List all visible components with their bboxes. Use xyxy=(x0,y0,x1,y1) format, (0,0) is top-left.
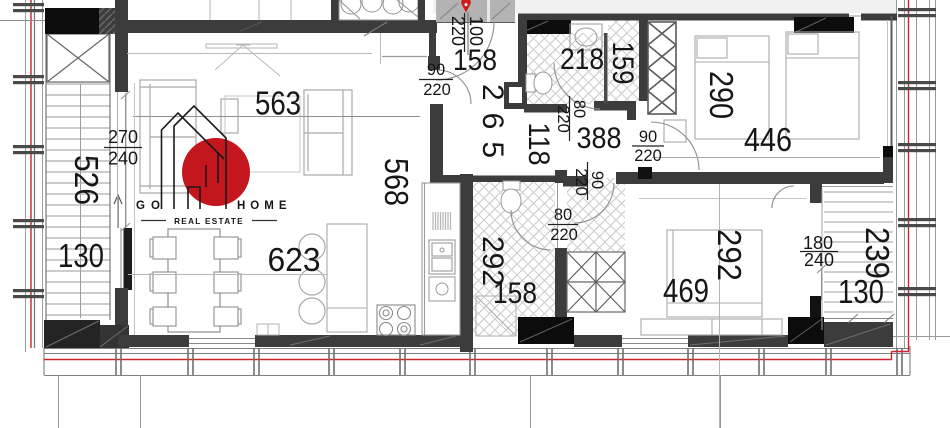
svg-text:GO: GO xyxy=(136,200,166,212)
svg-text:159: 159 xyxy=(606,42,639,85)
svg-text:158: 158 xyxy=(453,44,497,77)
svg-text:130: 130 xyxy=(58,237,104,274)
svg-text:623: 623 xyxy=(268,241,321,278)
svg-text:220: 220 xyxy=(448,16,468,46)
svg-text:80: 80 xyxy=(554,206,572,224)
svg-text:446: 446 xyxy=(744,121,792,158)
svg-text:270: 270 xyxy=(108,127,138,147)
svg-text:265: 265 xyxy=(476,84,509,158)
svg-text:563: 563 xyxy=(255,85,301,122)
svg-text:100: 100 xyxy=(466,16,486,46)
svg-text:240: 240 xyxy=(804,250,834,270)
svg-text:220: 220 xyxy=(423,81,451,99)
svg-text:292: 292 xyxy=(711,229,748,281)
svg-text:90: 90 xyxy=(427,61,445,79)
svg-text:118: 118 xyxy=(522,123,555,166)
svg-text:290: 290 xyxy=(703,71,740,119)
svg-text:218: 218 xyxy=(560,43,604,76)
svg-text:239: 239 xyxy=(859,227,896,279)
svg-text:90: 90 xyxy=(639,128,657,146)
svg-text:130: 130 xyxy=(838,273,884,310)
svg-text:568: 568 xyxy=(378,158,415,206)
svg-text:REAL ESTATE: REAL ESTATE xyxy=(174,217,244,226)
svg-text:388: 388 xyxy=(577,122,622,155)
svg-text:220: 220 xyxy=(554,105,572,133)
svg-text:526: 526 xyxy=(68,155,105,205)
svg-text:469: 469 xyxy=(663,272,709,309)
svg-text:158: 158 xyxy=(493,277,537,310)
svg-text:240: 240 xyxy=(108,149,138,169)
svg-text:HOME: HOME xyxy=(237,200,292,212)
svg-text:220: 220 xyxy=(634,147,662,165)
svg-text:220: 220 xyxy=(550,226,578,244)
svg-text:220: 220 xyxy=(572,168,590,196)
